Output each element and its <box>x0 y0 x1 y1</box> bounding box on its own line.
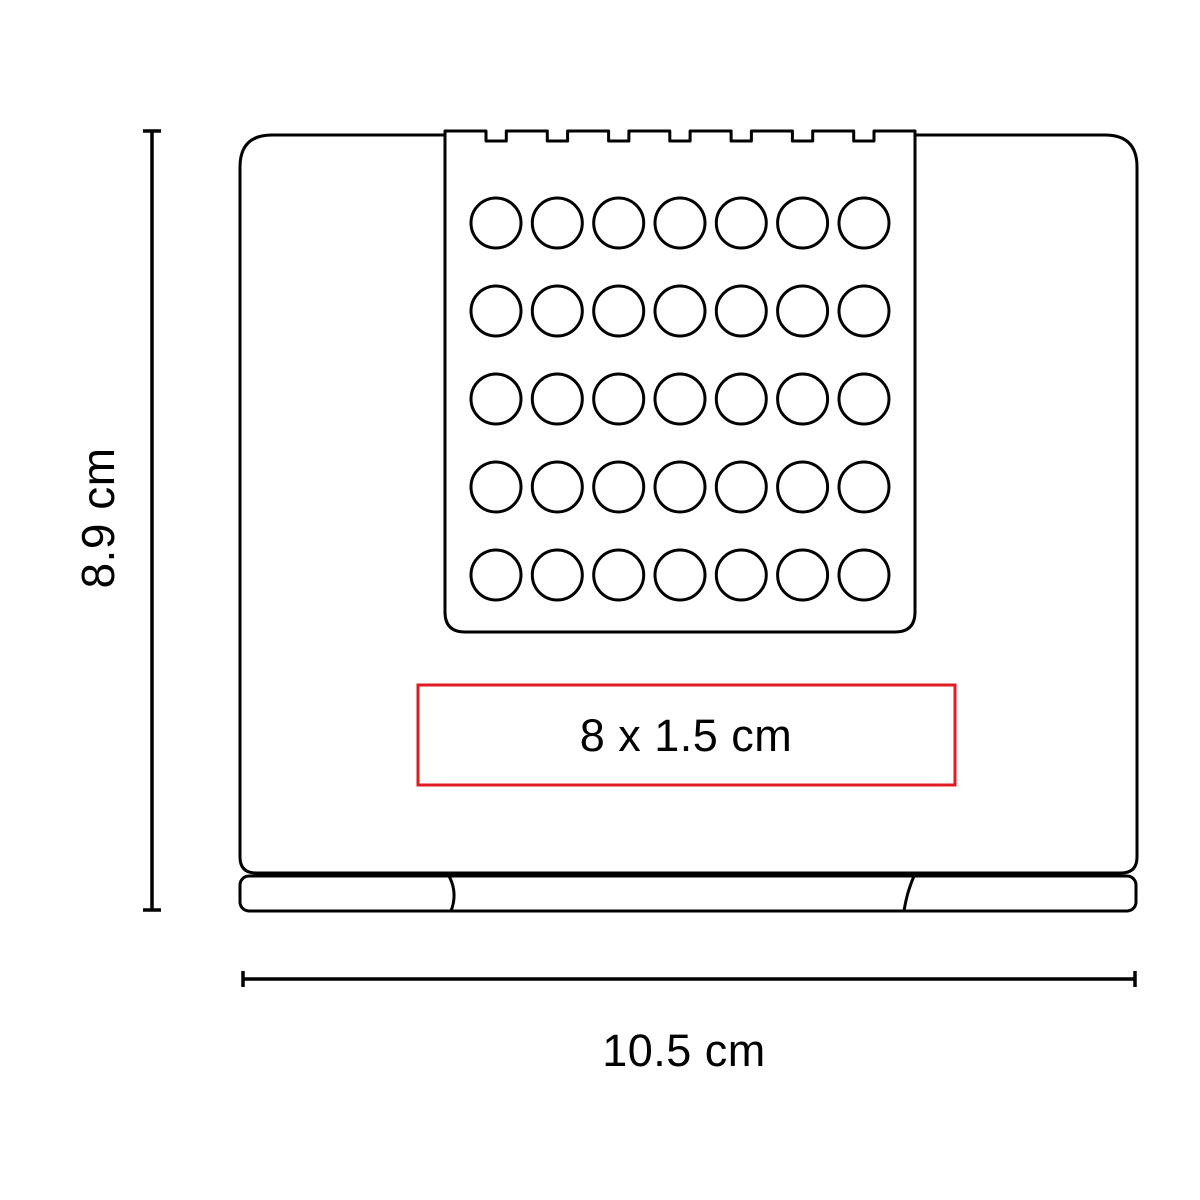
keypad-button-circle <box>532 198 582 248</box>
keypad-button-circle <box>471 462 521 512</box>
keypad-button-circle <box>778 286 828 336</box>
diagram-line-art <box>0 0 1200 1200</box>
keypad-button-circle <box>839 286 889 336</box>
keypad-button-circle <box>716 198 766 248</box>
product-dimension-diagram: 8.9 cm 10.5 cm 8 x 1.5 cm <box>0 0 1200 1200</box>
print-area-label: 8 x 1.5 cm <box>580 710 793 762</box>
keypad-button-circle <box>594 374 644 424</box>
keypad-button-circle <box>778 374 828 424</box>
keypad-button-circle <box>655 374 705 424</box>
keypad-button-circle <box>471 550 521 600</box>
keypad-button-circle <box>594 550 644 600</box>
height-dimension-label: 8.9 cm <box>71 447 125 588</box>
keypad-button-circle <box>655 462 705 512</box>
keypad-button-circle <box>716 286 766 336</box>
keypad-button-circle <box>655 198 705 248</box>
keypad-button-circle <box>839 374 889 424</box>
keypad-button-circle <box>839 198 889 248</box>
keypad-button-circle <box>839 462 889 512</box>
width-dimension-line <box>243 971 1135 987</box>
height-dimension-line <box>143 131 161 910</box>
keypad-button-circle <box>778 198 828 248</box>
keypad-button-circle <box>716 374 766 424</box>
keypad-button-circle <box>778 462 828 512</box>
keypad-button-circle <box>532 462 582 512</box>
keypad-button-circle <box>471 286 521 336</box>
keypad-button-circle <box>594 198 644 248</box>
keypad-button-circle <box>655 550 705 600</box>
keypad-button-circle <box>839 550 889 600</box>
keypad-button-circle <box>532 550 582 600</box>
keypad-button-circle <box>532 286 582 336</box>
keypad-button-circle <box>716 462 766 512</box>
keypad-button-circle <box>471 374 521 424</box>
keypad-button-circle <box>594 286 644 336</box>
width-dimension-label: 10.5 cm <box>602 1025 766 1077</box>
keypad-button-circle <box>471 198 521 248</box>
keypad-button-circle <box>778 550 828 600</box>
keypad-button-circle <box>655 286 705 336</box>
keypad-button-circle <box>716 550 766 600</box>
keypad-button-circle <box>594 462 644 512</box>
keypad-button-circle <box>532 374 582 424</box>
stand-bar <box>240 876 1136 911</box>
